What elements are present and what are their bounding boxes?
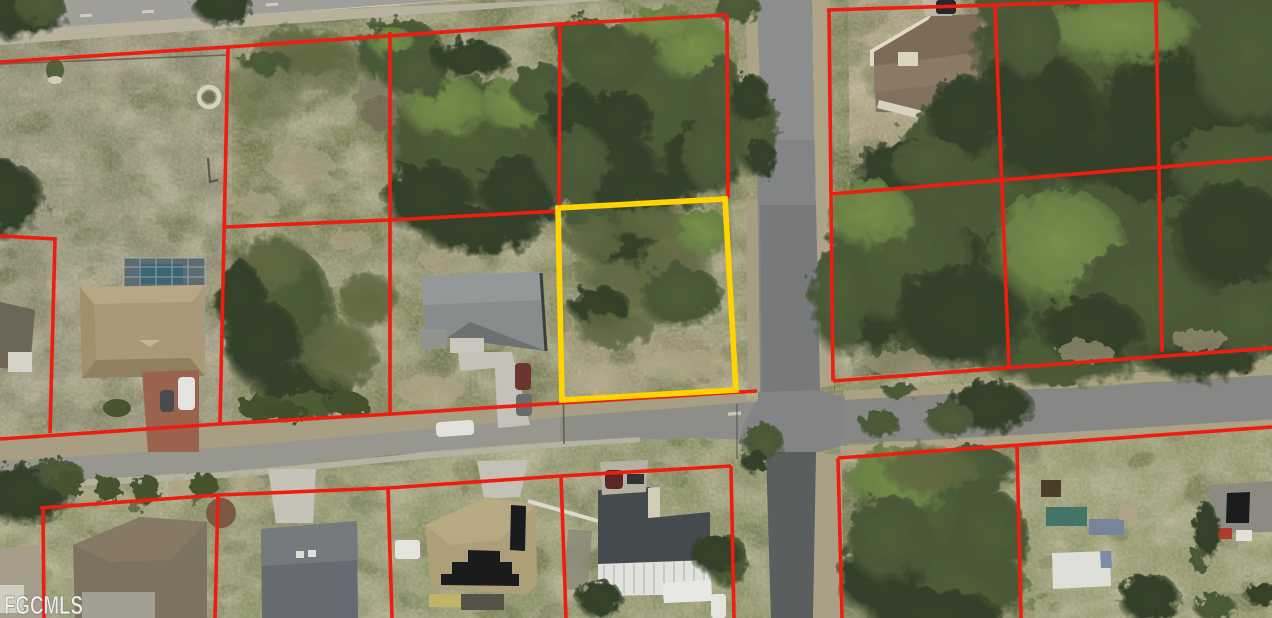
- svg-text:FGCMLS: FGCMLS: [4, 590, 83, 618]
